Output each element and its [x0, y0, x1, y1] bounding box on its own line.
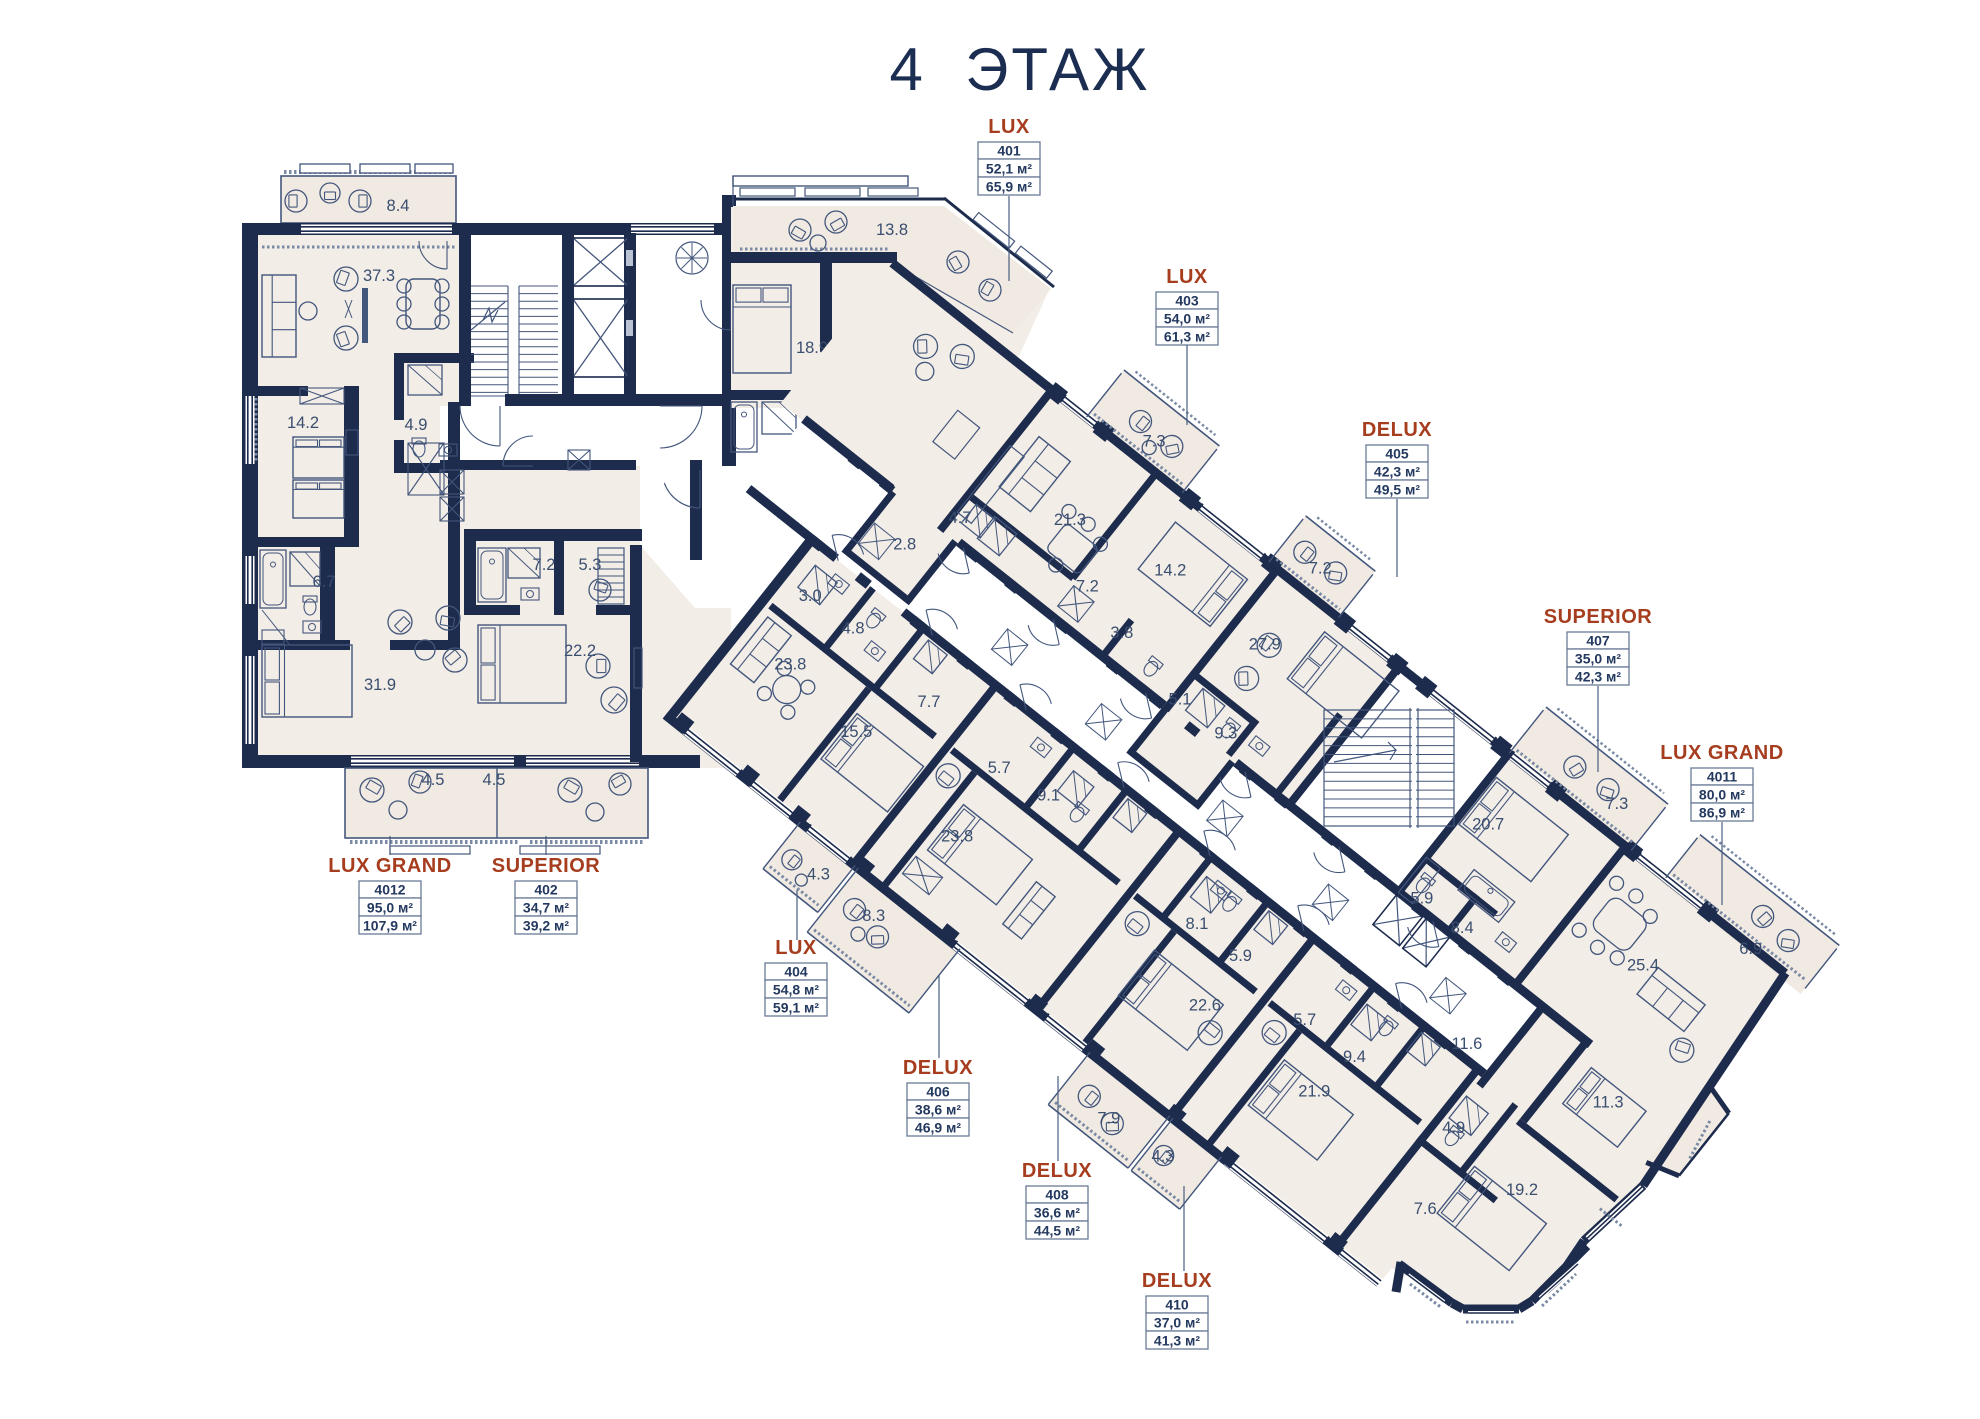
svg-text:402: 402 — [534, 882, 558, 898]
svg-text:403: 403 — [1175, 293, 1199, 309]
svg-text:39,2 м²: 39,2 м² — [523, 918, 569, 934]
svg-text:LUX: LUX — [1166, 266, 1208, 288]
svg-text:19.2: 19.2 — [1506, 1181, 1538, 1199]
svg-text:4.9: 4.9 — [405, 416, 428, 434]
svg-text:95,0 м²: 95,0 м² — [367, 900, 413, 916]
svg-text:LUX GRAND: LUX GRAND — [1660, 742, 1783, 764]
svg-text:DELUX: DELUX — [1362, 419, 1432, 441]
svg-text:8.1: 8.1 — [1186, 915, 1209, 933]
svg-text:LUX: LUX — [775, 937, 817, 959]
svg-text:42,3 м²: 42,3 м² — [1575, 669, 1621, 685]
svg-text:41,3 м²: 41,3 м² — [1154, 1333, 1200, 1349]
svg-text:65,9 м²: 65,9 м² — [986, 179, 1032, 195]
svg-text:11.6: 11.6 — [1451, 1035, 1482, 1053]
svg-text:54,8 м²: 54,8 м² — [773, 982, 819, 998]
svg-text:4012: 4012 — [374, 882, 405, 898]
svg-text:4.8: 4.8 — [842, 620, 865, 638]
svg-text:7.2: 7.2 — [1309, 559, 1332, 577]
svg-text:9.4: 9.4 — [1343, 1048, 1366, 1066]
svg-text:15.5: 15.5 — [840, 723, 872, 741]
svg-text:37,0 м²: 37,0 м² — [1154, 1315, 1200, 1331]
svg-text:23.8: 23.8 — [774, 655, 806, 673]
svg-text:408: 408 — [1045, 1187, 1069, 1203]
svg-text:2.8: 2.8 — [893, 536, 916, 554]
svg-text:36,6 м²: 36,6 м² — [1034, 1205, 1080, 1221]
svg-text:404: 404 — [784, 964, 808, 980]
svg-text:31.9: 31.9 — [364, 676, 396, 694]
svg-text:5.1: 5.1 — [1169, 691, 1192, 709]
svg-text:8.4: 8.4 — [1451, 919, 1474, 937]
svg-text:4 ЭТАЖ: 4 ЭТАЖ — [890, 36, 1151, 103]
svg-text:9.3: 9.3 — [1214, 725, 1237, 743]
svg-text:46,9 м²: 46,9 м² — [915, 1120, 961, 1136]
svg-text:9.1: 9.1 — [1037, 787, 1060, 805]
svg-text:7.6: 7.6 — [1414, 1200, 1437, 1218]
svg-text:59,1 м²: 59,1 м² — [773, 1000, 819, 1016]
svg-text:407: 407 — [1586, 633, 1610, 649]
svg-text:34,7 м²: 34,7 м² — [523, 900, 569, 916]
svg-text:6.9: 6.9 — [1739, 940, 1762, 958]
svg-text:80,0 м²: 80,0 м² — [1699, 787, 1745, 803]
svg-text:4.5: 4.5 — [483, 771, 506, 789]
svg-text:LUX GRAND: LUX GRAND — [328, 855, 451, 877]
svg-text:42,3 м²: 42,3 м² — [1374, 464, 1420, 480]
svg-text:LUX: LUX — [988, 116, 1030, 138]
svg-text:8.4: 8.4 — [387, 197, 410, 215]
svg-text:22.2: 22.2 — [564, 642, 596, 660]
svg-text:4.9: 4.9 — [1442, 1119, 1465, 1137]
svg-text:4.3: 4.3 — [1152, 1147, 1175, 1165]
svg-text:23.8: 23.8 — [941, 828, 973, 846]
svg-text:5.7: 5.7 — [1293, 1011, 1316, 1029]
svg-text:35,0 м²: 35,0 м² — [1575, 651, 1621, 667]
svg-text:DELUX: DELUX — [903, 1057, 973, 1079]
svg-text:21.9: 21.9 — [1298, 1082, 1330, 1100]
svg-text:7.2: 7.2 — [1076, 577, 1099, 595]
svg-text:52,1 м²: 52,1 м² — [986, 161, 1032, 177]
svg-text:107,9 м²: 107,9 м² — [363, 918, 417, 934]
svg-text:405: 405 — [1385, 446, 1409, 462]
svg-text:7.9: 7.9 — [1097, 1109, 1120, 1127]
svg-text:4.7: 4.7 — [949, 509, 972, 527]
svg-text:13.8: 13.8 — [876, 221, 908, 239]
svg-text:SUPERIOR: SUPERIOR — [1544, 606, 1653, 628]
svg-text:21.3: 21.3 — [1054, 511, 1086, 529]
svg-text:61,3 м²: 61,3 м² — [1164, 329, 1210, 345]
svg-text:54,0 м²: 54,0 м² — [1164, 311, 1210, 327]
svg-text:27.9: 27.9 — [1249, 635, 1281, 653]
svg-text:4.3: 4.3 — [807, 866, 830, 884]
svg-text:7.3: 7.3 — [1605, 795, 1628, 813]
svg-text:7.7: 7.7 — [918, 693, 941, 711]
svg-text:20.7: 20.7 — [1472, 816, 1504, 834]
svg-text:22.6: 22.6 — [1189, 997, 1221, 1015]
svg-text:14.2: 14.2 — [1154, 561, 1186, 579]
svg-text:11.3: 11.3 — [1593, 1094, 1624, 1112]
svg-text:5.9: 5.9 — [1410, 889, 1433, 907]
svg-text:4011: 4011 — [1707, 769, 1738, 785]
svg-text:44,5 м²: 44,5 м² — [1034, 1223, 1080, 1239]
svg-text:DELUX: DELUX — [1022, 1160, 1092, 1182]
svg-text:5.9: 5.9 — [1229, 947, 1252, 965]
svg-text:4.5: 4.5 — [422, 771, 445, 789]
svg-text:3.0: 3.0 — [799, 587, 822, 605]
svg-text:406: 406 — [926, 1084, 950, 1100]
svg-text:7.3: 7.3 — [1143, 432, 1166, 450]
svg-text:3.8: 3.8 — [1110, 624, 1133, 642]
svg-text:410: 410 — [1165, 1297, 1189, 1313]
svg-text:25.4: 25.4 — [1627, 957, 1659, 975]
svg-text:49,5 м²: 49,5 м² — [1374, 482, 1420, 498]
svg-text:DELUX: DELUX — [1142, 1270, 1212, 1292]
svg-text:86,9 м²: 86,9 м² — [1699, 805, 1745, 821]
svg-text:5.7: 5.7 — [988, 759, 1011, 777]
svg-text:401: 401 — [997, 143, 1021, 159]
svg-text:8.3: 8.3 — [862, 907, 885, 925]
svg-text:38,6 м²: 38,6 м² — [915, 1102, 961, 1118]
svg-text:14.2: 14.2 — [287, 414, 319, 432]
svg-text:SUPERIOR: SUPERIOR — [492, 855, 601, 877]
svg-text:37.3: 37.3 — [363, 267, 395, 285]
